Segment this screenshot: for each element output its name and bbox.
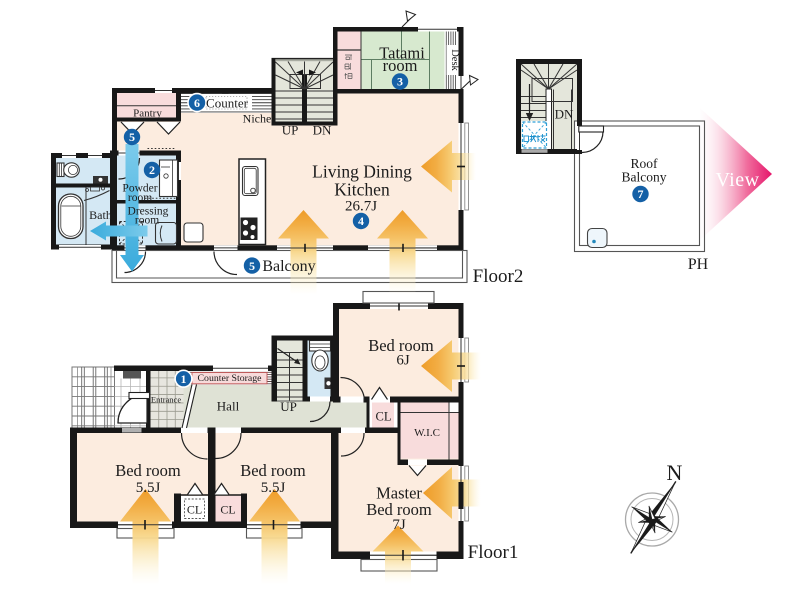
svg-text:7: 7: [638, 187, 644, 201]
svg-text:room: room: [128, 192, 152, 204]
svg-text:Floor2: Floor2: [473, 266, 524, 287]
svg-text:N: N: [667, 460, 683, 485]
svg-text:Counter Storage: Counter Storage: [198, 373, 263, 384]
svg-text:Living Dining: Living Dining: [312, 162, 412, 182]
svg-text:room: room: [383, 56, 418, 75]
svg-text:1: 1: [181, 372, 187, 386]
svg-text:Balcony: Balcony: [262, 258, 315, 275]
svg-text:W.I.C: W.I.C: [414, 427, 440, 439]
svg-text:Niche: Niche: [243, 112, 272, 126]
svg-text:7J: 7J: [392, 517, 406, 533]
svg-text:6J: 6J: [396, 353, 410, 369]
svg-text:2: 2: [149, 163, 155, 177]
svg-text:DN: DN: [555, 107, 574, 122]
svg-text:CL: CL: [187, 503, 202, 517]
svg-text:Floor1: Floor1: [468, 542, 519, 563]
svg-text:5.5J: 5.5J: [136, 480, 161, 496]
svg-text:4: 4: [358, 214, 364, 228]
svg-text:Hall: Hall: [217, 399, 240, 414]
svg-text:Pantry: Pantry: [133, 108, 162, 120]
svg-text:View: View: [715, 169, 759, 191]
svg-text:CL: CL: [220, 503, 235, 517]
svg-text:3: 3: [397, 75, 403, 89]
svg-text:DN: DN: [313, 123, 332, 138]
svg-text:Balcony: Balcony: [622, 170, 667, 185]
svg-text:5: 5: [129, 130, 135, 144]
svg-text:UP: UP: [282, 123, 299, 138]
svg-text:PH: PH: [688, 256, 709, 273]
svg-text:5: 5: [249, 259, 255, 273]
svg-text:Kitchen: Kitchen: [334, 180, 390, 200]
svg-text:Counter: Counter: [206, 96, 249, 111]
svg-text:Bed room: Bed room: [240, 461, 306, 480]
svg-text:5.5J: 5.5J: [261, 480, 286, 496]
svg-text:Bath: Bath: [89, 208, 112, 222]
svg-text:6: 6: [194, 96, 200, 110]
svg-text:Desk: Desk: [449, 49, 460, 71]
svg-text:Bed room: Bed room: [115, 461, 181, 480]
svg-text:Entrance: Entrance: [151, 395, 181, 405]
svg-text:26.7J: 26.7J: [345, 199, 377, 215]
svg-text:UP: UP: [280, 399, 297, 414]
svg-text:CL: CL: [376, 410, 392, 424]
svg-text:room: room: [135, 215, 159, 227]
